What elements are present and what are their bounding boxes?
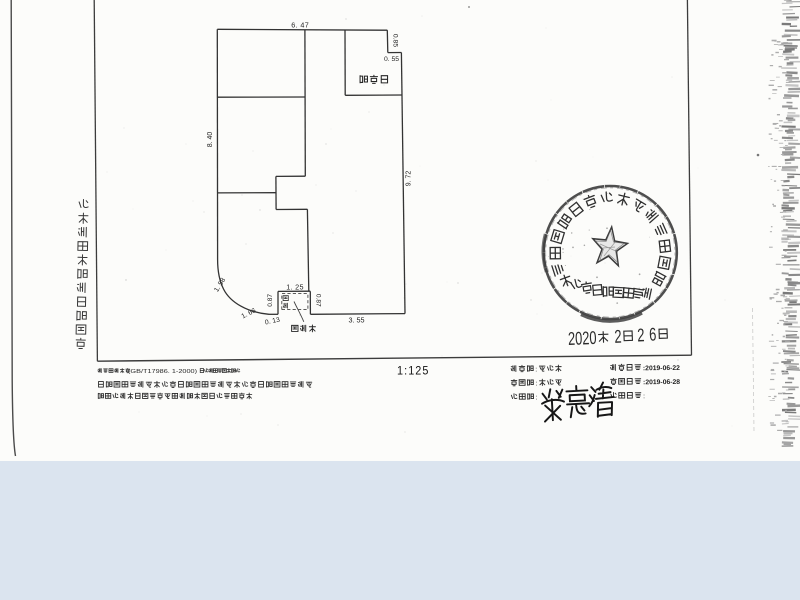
svg-text:1. 66: 1. 66 [240, 307, 257, 320]
svg-text:0.85: 0.85 [392, 34, 399, 47]
svg-text:9. 72: 9. 72 [406, 171, 413, 187]
svg-text:2: 2 [614, 326, 622, 347]
svg-text::: : [535, 394, 537, 401]
svg-text::: : [643, 393, 645, 400]
svg-text::2019-06-28: :2019-06-28 [643, 379, 680, 386]
svg-text:3. 55: 3. 55 [349, 316, 365, 325]
svg-text:0. 13: 0. 13 [264, 316, 280, 326]
svg-text:8. 40: 8. 40 [207, 132, 214, 148]
svg-text:(GB/T17986. 1-2000): (GB/T17986. 1-2000) [128, 369, 197, 375]
svg-text::: : [535, 380, 537, 387]
svg-text:1:125: 1:125 [397, 363, 430, 377]
svg-text:0.87: 0.87 [314, 294, 321, 307]
svg-text:2: 2 [637, 324, 645, 345]
svg-text::2019-06-22: :2019-06-22 [643, 365, 680, 372]
svg-text:6. 47: 6. 47 [291, 20, 309, 29]
svg-text:6: 6 [649, 324, 657, 345]
svg-text:2020: 2020 [568, 327, 597, 349]
svg-text::: : [535, 366, 537, 373]
svg-text:0.87: 0.87 [267, 294, 274, 307]
svg-text:0. 55: 0. 55 [384, 56, 399, 63]
svg-text:1. 25: 1. 25 [286, 282, 304, 291]
